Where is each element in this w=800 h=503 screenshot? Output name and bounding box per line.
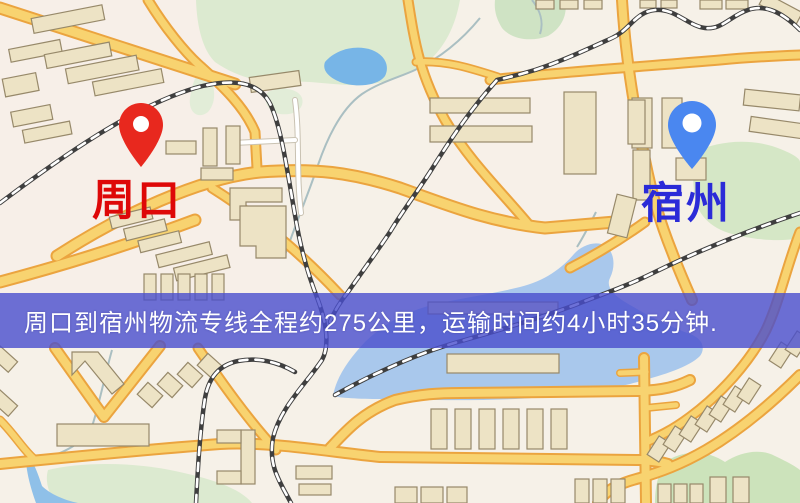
route-info-banner: 周口到宿州物流专线全程约275公里，运输时间约4小时35分钟. xyxy=(0,293,800,348)
map-canvas xyxy=(0,0,800,503)
destination-label: 宿州 xyxy=(641,183,731,226)
origin-label: 周口 xyxy=(92,180,182,223)
map-screenshot: 周口 宿州 周口到宿州物流专线全程约275公里，运输时间约4小时35分钟. xyxy=(0,0,800,503)
route-info-text: 周口到宿州物流专线全程约275公里，运输时间约4小时35分钟. xyxy=(24,303,718,338)
